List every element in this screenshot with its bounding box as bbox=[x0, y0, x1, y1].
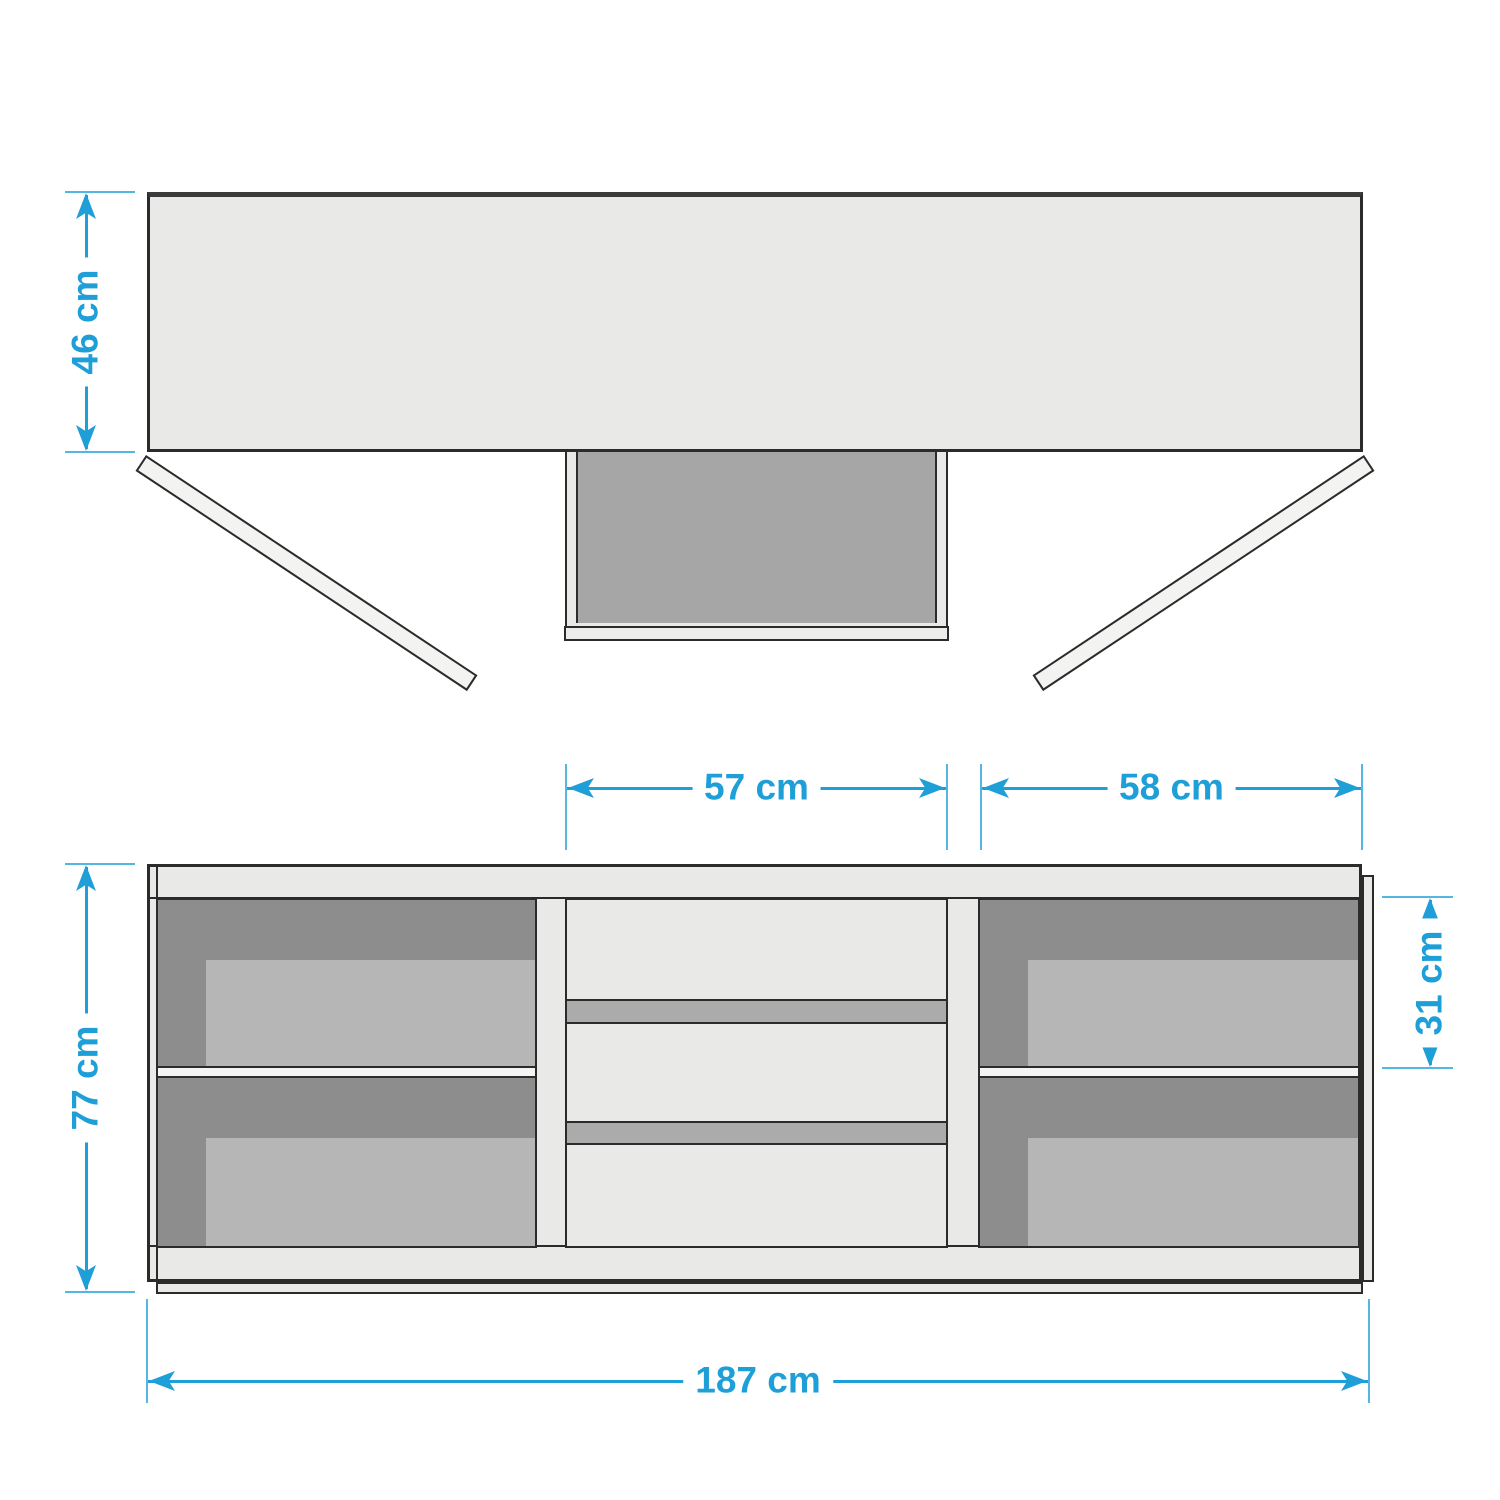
extension-line bbox=[65, 191, 135, 193]
dimension-right-section-width: 58 cm bbox=[980, 764, 1363, 850]
right-door-open bbox=[1032, 455, 1374, 691]
dimension-drawer-section-label: 57 cm bbox=[692, 768, 821, 809]
bottom-panel-depth-strip bbox=[156, 1282, 1363, 1294]
dimension-height-label: 77 cm bbox=[66, 1014, 107, 1143]
extension-line bbox=[1382, 896, 1453, 898]
extension-line bbox=[980, 764, 982, 850]
drawer-front-top bbox=[565, 898, 948, 1001]
dimension-drawer-section-width: 57 cm bbox=[565, 764, 948, 850]
dimension-depth-label: 46 cm bbox=[66, 258, 107, 387]
extension-line bbox=[1361, 764, 1363, 850]
drawer-front-middle bbox=[565, 1022, 948, 1123]
dimension-depth: 46 cm bbox=[65, 191, 135, 453]
extension-line bbox=[946, 764, 948, 850]
side-panel-depth-strip bbox=[1362, 875, 1374, 1282]
dimension-total-width-label: 187 cm bbox=[683, 1361, 833, 1402]
extension-line bbox=[65, 451, 135, 453]
left-door-open bbox=[135, 455, 477, 691]
drawer-gap-strip bbox=[565, 1121, 948, 1145]
top-view-open-drawer bbox=[565, 452, 948, 628]
dimension-height: 77 cm bbox=[65, 863, 135, 1293]
right-upper-compartment bbox=[978, 898, 1360, 1068]
dimension-compartment-height-label: 31 cm bbox=[1410, 918, 1451, 1047]
extension-line bbox=[1368, 1299, 1370, 1403]
extension-line bbox=[1382, 1067, 1453, 1069]
dimension-right-section-label: 58 cm bbox=[1107, 768, 1236, 809]
left-upper-compartment bbox=[156, 898, 537, 1068]
compartment-interior bbox=[1028, 960, 1358, 1066]
dimension-total-width: 187 cm bbox=[146, 1299, 1370, 1403]
compartment-interior bbox=[206, 1138, 535, 1246]
extension-line bbox=[65, 1291, 135, 1293]
top-view-cabinet-body bbox=[147, 192, 1363, 452]
compartment-interior bbox=[206, 960, 535, 1066]
drawer-cavity bbox=[576, 452, 937, 623]
extension-line bbox=[65, 863, 135, 865]
drawer-gap-strip bbox=[565, 999, 948, 1024]
extension-line bbox=[565, 764, 567, 850]
dimension-compartment-height: 31 cm bbox=[1382, 896, 1453, 1069]
drawer-front-panel bbox=[564, 626, 949, 641]
compartment-interior bbox=[1028, 1138, 1358, 1246]
extension-line bbox=[146, 1299, 148, 1403]
right-lower-compartment bbox=[978, 1076, 1360, 1248]
drawer-front-bottom bbox=[565, 1143, 948, 1248]
left-lower-compartment bbox=[156, 1076, 537, 1248]
furniture-dimension-diagram: 46 cm 77 cm 31 cm 57 cm 58 cm bbox=[0, 0, 1500, 1500]
